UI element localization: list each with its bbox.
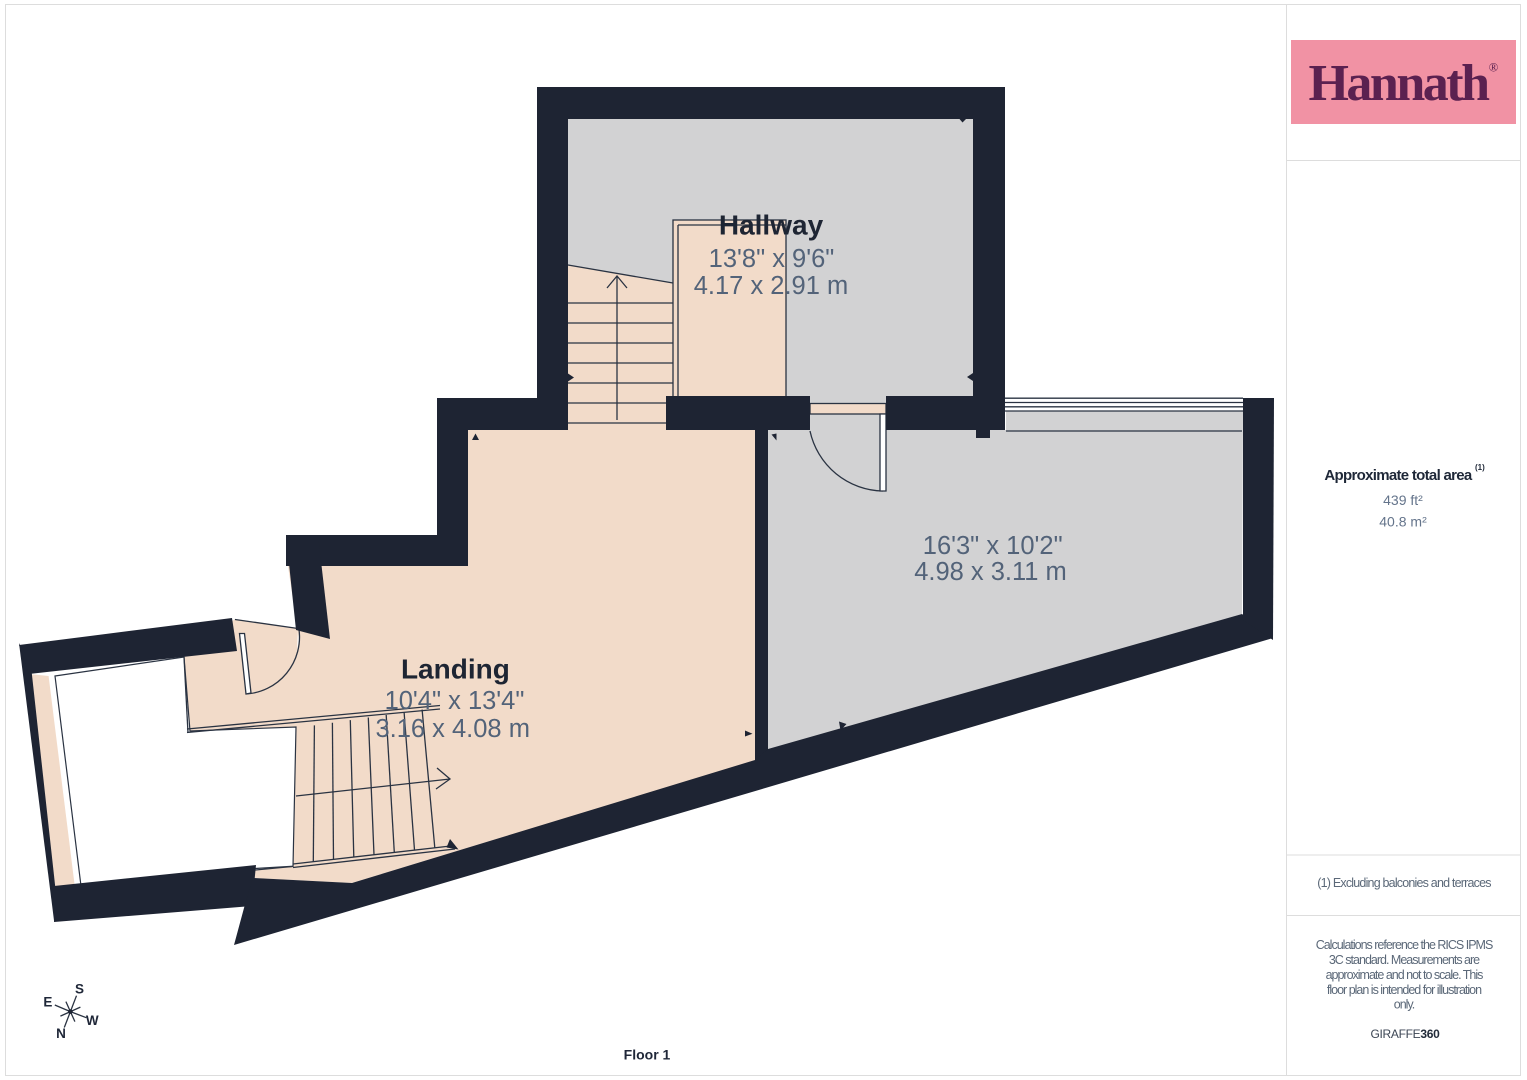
svg-text:16'3" x 10'2": 16'3" x 10'2" — [923, 532, 1063, 560]
svg-text:(1) Excluding balconies and te: (1) Excluding balconies and terraces — [1317, 876, 1491, 890]
svg-text:10'4" x 13'4": 10'4" x 13'4" — [385, 687, 525, 715]
svg-text:4.98 x 3.11 m: 4.98 x 3.11 m — [914, 558, 1067, 586]
svg-text:Hallway: Hallway — [719, 210, 824, 241]
svg-text:Approximate total area: Approximate total area — [1324, 467, 1473, 484]
svg-text:Floor 1: Floor 1 — [624, 1047, 671, 1063]
svg-text:4.17 x 2.91 m: 4.17 x 2.91 m — [694, 272, 849, 300]
svg-text:S: S — [75, 982, 84, 997]
svg-text:Hannath: Hannath — [1308, 55, 1490, 112]
svg-text:E: E — [43, 995, 52, 1010]
svg-text:floor plan is intended for ill: floor plan is intended for illustration — [1327, 983, 1482, 997]
svg-text:®: ® — [1489, 61, 1499, 75]
svg-text:N: N — [56, 1026, 66, 1041]
svg-text:W: W — [86, 1013, 99, 1028]
svg-text:13'8" x 9'6": 13'8" x 9'6" — [709, 245, 835, 273]
svg-text:(1): (1) — [1475, 463, 1485, 472]
svg-text:approximate and not to scale.: approximate and not to scale. This — [1326, 968, 1484, 982]
svg-text:Landing: Landing — [401, 654, 510, 685]
svg-text:40.8 m²: 40.8 m² — [1379, 514, 1427, 530]
svg-text:439 ft²: 439 ft² — [1383, 492, 1423, 508]
svg-text:GIRAFFE360: GIRAFFE360 — [1370, 1027, 1440, 1041]
svg-text:only.: only. — [1394, 998, 1415, 1012]
svg-text:Calculations reference the RIC: Calculations reference the RICS IPMS — [1316, 938, 1493, 952]
svg-text:3C standard. Measurements are: 3C standard. Measurements are — [1329, 953, 1480, 967]
svg-text:3.16 x 4.08 m: 3.16 x 4.08 m — [375, 715, 530, 743]
